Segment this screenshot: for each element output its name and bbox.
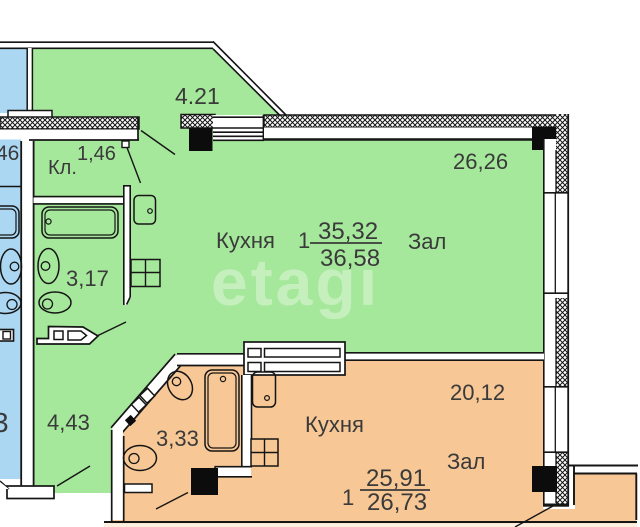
svg-text:36,58: 36,58: [320, 245, 380, 272]
svg-text:Зал: Зал: [447, 449, 485, 474]
svg-text:4,43: 4,43: [47, 410, 90, 435]
svg-text:26,73: 26,73: [367, 489, 427, 516]
svg-text:1: 1: [342, 485, 354, 510]
svg-text:3,33: 3,33: [156, 426, 199, 451]
svg-text:1,46: 1,46: [77, 143, 116, 165]
svg-text:3: 3: [0, 407, 9, 438]
svg-text:35,32: 35,32: [318, 218, 378, 245]
svg-text:Зал: Зал: [408, 229, 446, 254]
svg-text:Кухня: Кухня: [216, 228, 275, 253]
svg-text:3,17: 3,17: [66, 266, 109, 291]
svg-text:26,26: 26,26: [453, 149, 508, 174]
svg-text:Кл.: Кл.: [48, 157, 77, 179]
svg-text:20,12: 20,12: [450, 380, 505, 405]
svg-text:1: 1: [298, 228, 310, 253]
svg-text:46: 46: [0, 142, 19, 165]
svg-text:4.21: 4.21: [175, 83, 220, 109]
svg-text:Кухня: Кухня: [305, 412, 364, 437]
svg-text:25,91: 25,91: [366, 465, 426, 492]
